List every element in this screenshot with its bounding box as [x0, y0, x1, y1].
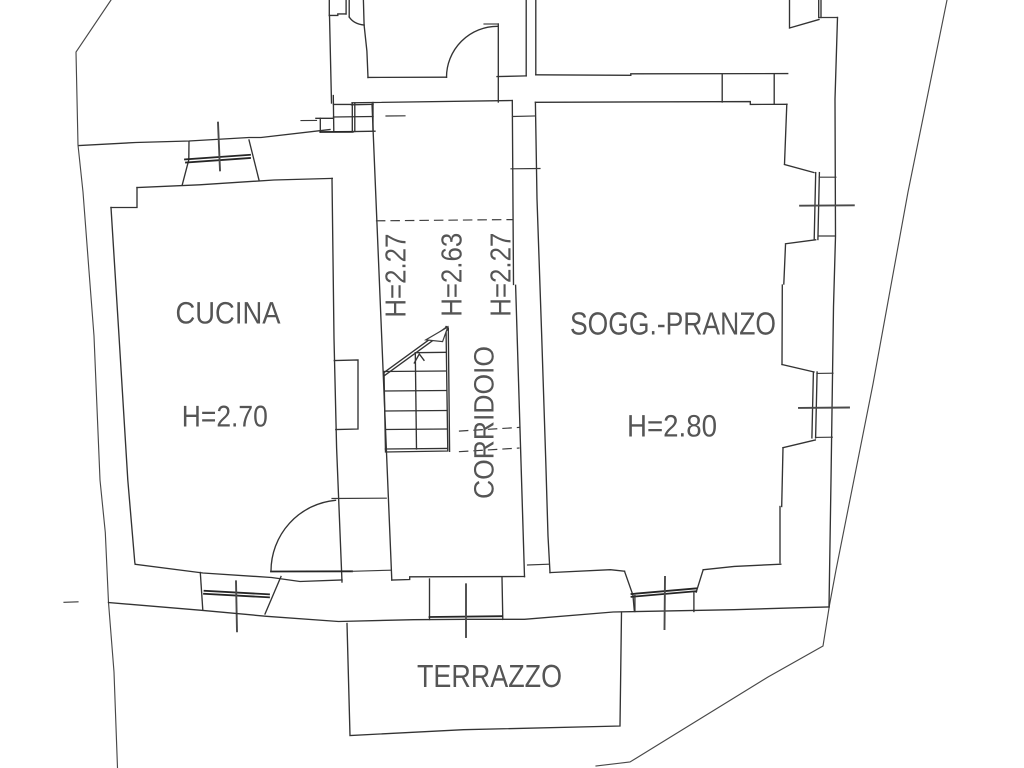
svg-text:CORRIDOIO: CORRIDOIO [469, 346, 500, 499]
svg-text:H=2.70: H=2.70 [182, 400, 268, 433]
svg-text:CUCINA: CUCINA [176, 296, 281, 331]
svg-text:H=2.80: H=2.80 [627, 409, 717, 444]
svg-text:TERRAZZO: TERRAZZO [417, 658, 562, 694]
svg-text:H=2.27: H=2.27 [381, 234, 413, 318]
svg-text:H=2.27: H=2.27 [486, 233, 518, 317]
svg-text:SOGG.-PRANZO: SOGG.-PRANZO [570, 306, 776, 342]
svg-text:H=2.63: H=2.63 [436, 233, 468, 317]
